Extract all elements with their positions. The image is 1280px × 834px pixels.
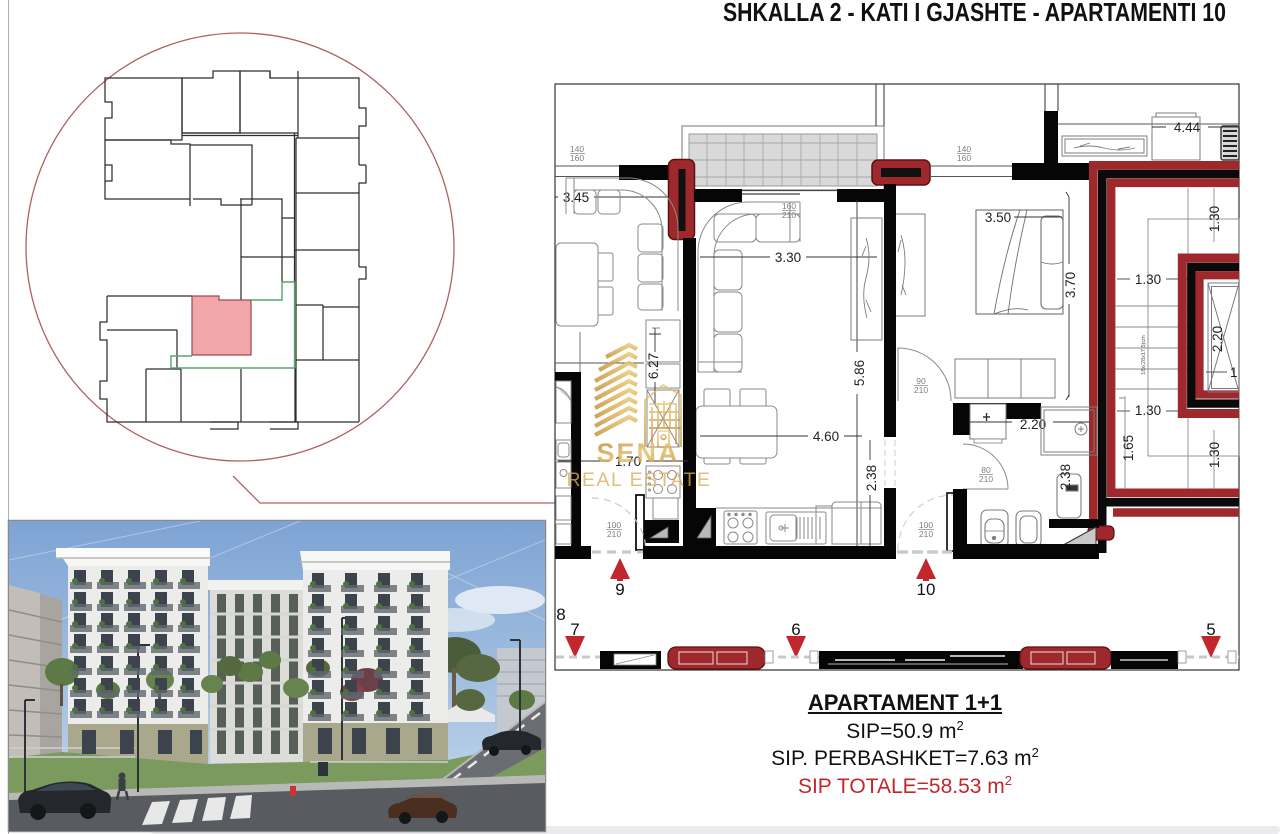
svg-text:1: 1 [1230, 365, 1238, 380]
svg-text:210: 210 [607, 529, 621, 539]
svg-text:210: 210 [979, 474, 993, 484]
svg-text:160: 160 [957, 153, 971, 163]
svg-text:4.44: 4.44 [1174, 120, 1201, 135]
svg-text:1.65: 1.65 [1121, 435, 1136, 461]
svg-text:210: 210 [782, 210, 796, 220]
svg-text:9: 9 [615, 580, 624, 599]
svg-text:8: 8 [556, 605, 565, 624]
svg-text:3.70: 3.70 [1063, 272, 1078, 298]
svg-text:210: 210 [914, 385, 928, 395]
svg-text:2.20: 2.20 [1020, 417, 1046, 432]
svg-text:4.60: 4.60 [813, 429, 839, 444]
svg-text:1.30: 1.30 [1135, 403, 1161, 418]
svg-text:2.20: 2.20 [1210, 326, 1225, 352]
svg-text:160: 160 [570, 153, 584, 163]
svg-text:3.30: 3.30 [775, 250, 801, 265]
svg-text:3.45: 3.45 [563, 190, 589, 205]
svg-text:SENA: SENA [596, 438, 679, 468]
svg-text:10: 10 [917, 580, 936, 599]
svg-text:REAL ESTATE: REAL ESTATE [566, 469, 711, 491]
svg-text:18x(28x17.5)cm: 18x(28x17.5)cm [1141, 335, 1147, 375]
svg-text:2.38: 2.38 [1058, 464, 1073, 490]
svg-text:210: 210 [919, 529, 933, 539]
svg-text:5.86: 5.86 [852, 360, 867, 386]
svg-text:1.30: 1.30 [1207, 442, 1222, 468]
svg-text:2.38: 2.38 [864, 465, 879, 491]
svg-text:3.50: 3.50 [985, 210, 1011, 225]
svg-text:1.30: 1.30 [1207, 206, 1222, 232]
svg-text:6.27: 6.27 [646, 353, 661, 379]
svg-text:1.30: 1.30 [1135, 272, 1161, 287]
